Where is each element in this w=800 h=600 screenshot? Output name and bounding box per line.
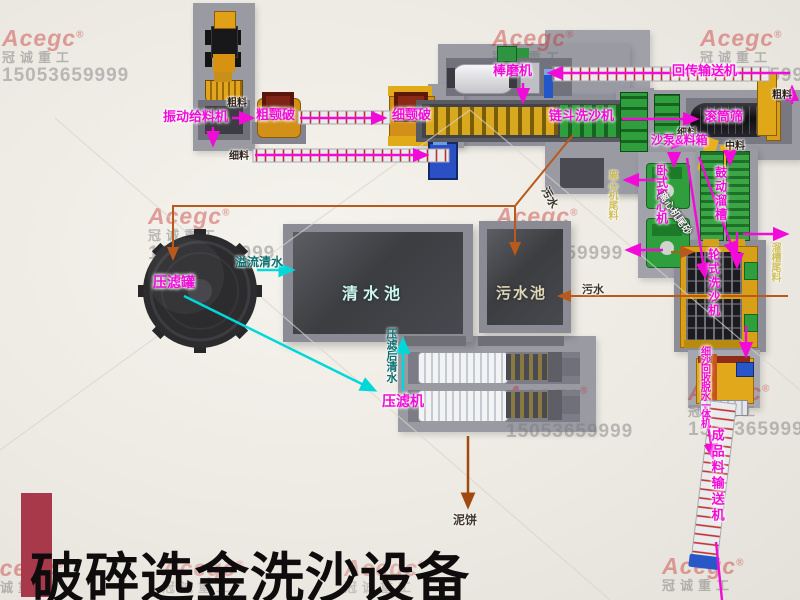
page-title: 破碎选金洗沙设备 bbox=[30, 534, 470, 600]
wheel-washer-motor bbox=[744, 262, 758, 280]
filter-press-tail bbox=[562, 358, 580, 376]
press-edge-block bbox=[478, 336, 564, 346]
filter-press-end bbox=[548, 352, 562, 382]
slurry-pump-top bbox=[544, 69, 553, 75]
filter-press-plates bbox=[506, 354, 548, 380]
filter-tank-machine bbox=[138, 229, 262, 353]
label-overflow-water: 溢流清水 bbox=[235, 253, 283, 270]
label-drum-screen: 滚筒筛 bbox=[704, 110, 743, 124]
label-sewage-horizontal: 污水 bbox=[582, 281, 604, 297]
plant-layout-diagram: Acegc® 冠诚重工 15053659999 Acegc® 冠诚重工 1505… bbox=[0, 0, 800, 600]
sewage-pool-water bbox=[487, 229, 563, 325]
label-coarse-material: 粗料 bbox=[227, 94, 247, 109]
label-wheel-sand-washer: 轮式洗沙机 bbox=[707, 248, 720, 318]
label-rod-mill: 棒磨机 bbox=[493, 64, 532, 78]
watermark-brand: Acegc® bbox=[2, 26, 129, 51]
return-elevator bbox=[757, 72, 777, 136]
bucket-elevator bbox=[428, 142, 458, 180]
label-coarse-material: 粗料 bbox=[772, 86, 792, 101]
label-filter-tank: 压滤罐 bbox=[153, 275, 195, 290]
label-clear-pool: 清水池 bbox=[342, 280, 405, 304]
label-coarse-jaw-crusher: 粗颚破 bbox=[256, 108, 295, 122]
wheel-washer-motor bbox=[744, 314, 758, 332]
label-product-conveyor: 成品料输送机 bbox=[710, 428, 724, 524]
sluice-trough bbox=[726, 151, 750, 241]
label-vibrating-feeder: 振动给料机 bbox=[163, 110, 228, 124]
watermark: Acegc® 冠诚重工 bbox=[662, 554, 744, 594]
label-fine-jaw-crusher: 细颚破 bbox=[392, 108, 431, 122]
wheel-loader-engine bbox=[213, 54, 235, 72]
label-sluice-tailings: 溜槽尾料 bbox=[767, 242, 782, 282]
rod-mill-end bbox=[447, 68, 455, 88]
wheel-washer-sill bbox=[684, 340, 744, 348]
centrifuge-bowl bbox=[660, 241, 674, 255]
recycler-motor-blue bbox=[736, 362, 754, 377]
label-fine-material: 细料 bbox=[229, 147, 249, 162]
label-return-conveyor: 回传输送机 bbox=[672, 64, 737, 78]
label-sewage-pool: 污水池 bbox=[496, 282, 547, 303]
pump-motor bbox=[517, 48, 529, 58]
label-centrifuge-tailings: 离心机尾料 bbox=[604, 170, 619, 220]
press-edge-block bbox=[404, 336, 466, 346]
filter-press-tail bbox=[562, 396, 580, 414]
chain-washer-buckets bbox=[426, 107, 558, 135]
rod-mill-motor bbox=[497, 46, 517, 62]
dark-pump-unit bbox=[560, 158, 604, 188]
label-chain-bucket-washer: 链斗洗沙机 bbox=[549, 109, 614, 123]
label-water-after-press: 压滤后清水 bbox=[383, 328, 399, 383]
recycler-pipe bbox=[712, 354, 717, 402]
label-mud-cake: 泥饼 bbox=[453, 511, 477, 528]
label-middle-material: 中料 bbox=[725, 137, 745, 152]
watermark: Acegc® 冠诚重工 15053659999 bbox=[2, 26, 129, 86]
label-sand-pump-box: 沙泵&料箱 bbox=[651, 134, 708, 147]
filter-press-cylinder bbox=[418, 390, 508, 422]
filter-press-plates bbox=[506, 392, 548, 418]
label-filter-press: 压滤机 bbox=[382, 394, 424, 409]
slurry-pump-blue bbox=[544, 74, 553, 98]
filter-press-end bbox=[548, 390, 562, 420]
label-fine-sand-recycler: 细沙回收脱水一体机 bbox=[698, 346, 709, 427]
filter-press-cylinder bbox=[418, 352, 508, 384]
wheel-loader-rear bbox=[214, 11, 236, 29]
label-vibrating-sluice: 鼓动溜槽 bbox=[714, 166, 727, 222]
green-vibrating-unit bbox=[620, 92, 648, 152]
